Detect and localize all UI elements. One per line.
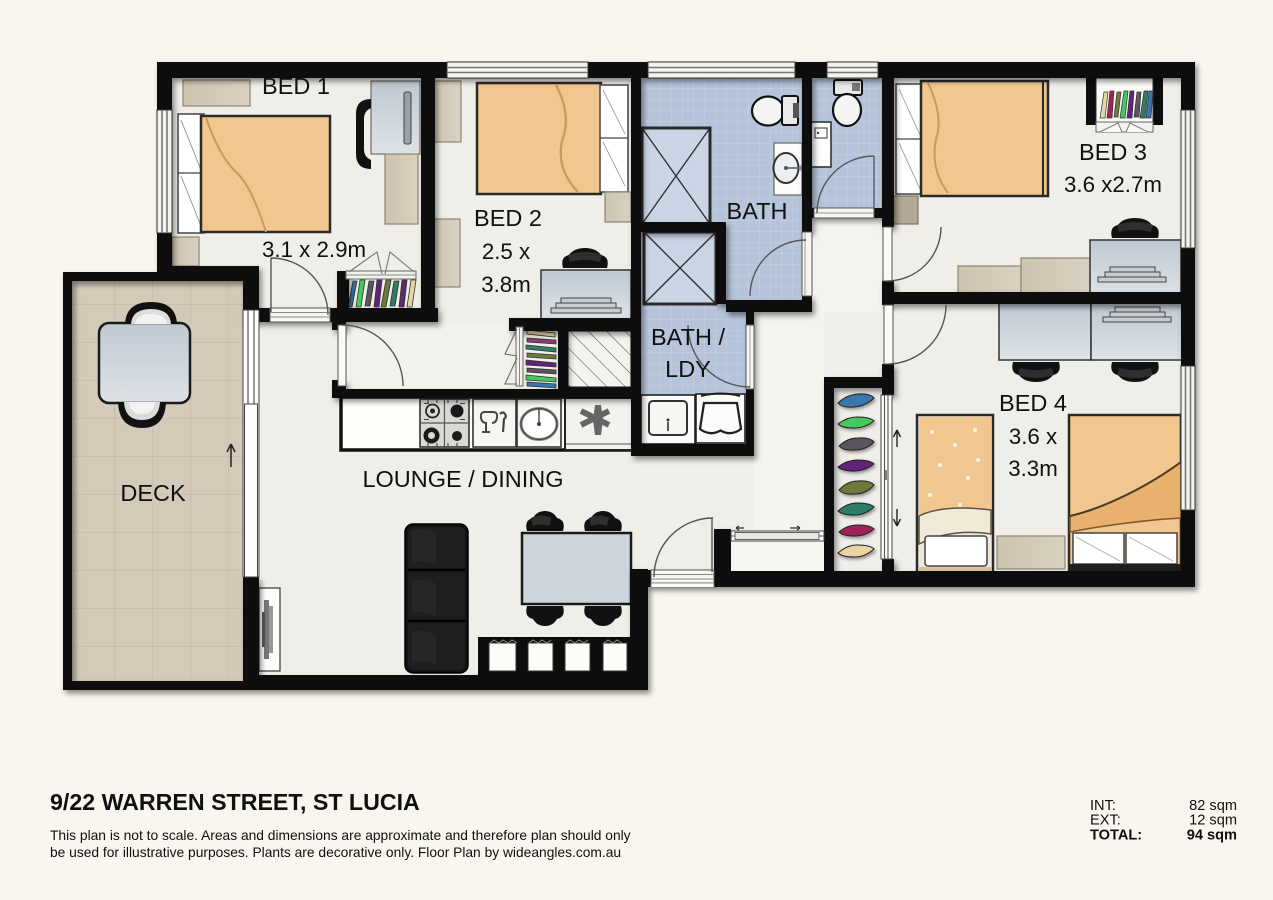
- svg-text:BED 2: BED 2: [474, 205, 542, 231]
- svg-text:3.6 x: 3.6 x: [1009, 424, 1057, 449]
- svg-text:2.5 x: 2.5 x: [482, 239, 530, 264]
- svg-text:12 sqm: 12 sqm: [1189, 813, 1237, 829]
- svg-text:BED 4: BED 4: [999, 390, 1067, 416]
- svg-text:LOUNGE / DINING: LOUNGE / DINING: [362, 466, 563, 492]
- svg-text:BATH /: BATH /: [651, 324, 725, 350]
- svg-text:BATH: BATH: [727, 198, 788, 224]
- svg-text:be used for illustrative purpo: be used for illustrative purposes. Plant…: [50, 845, 621, 860]
- svg-text:3.3m: 3.3m: [1008, 456, 1058, 481]
- svg-text:94 sqm: 94 sqm: [1187, 828, 1237, 844]
- svg-text:DECK: DECK: [120, 480, 186, 506]
- svg-text:9/22 WARREN STREET, ST LUCIA: 9/22 WARREN STREET, ST LUCIA: [50, 789, 420, 815]
- svg-text:This plan is not to scale. Are: This plan is not to scale. Areas and dim…: [50, 828, 631, 843]
- svg-text:EXT:: EXT:: [1090, 813, 1121, 829]
- svg-text:BED 3: BED 3: [1079, 139, 1147, 165]
- svg-text:LDY: LDY: [665, 356, 711, 382]
- svg-text:BED 1: BED 1: [262, 73, 330, 99]
- svg-text:3.1 x 2.9m: 3.1 x 2.9m: [262, 237, 366, 262]
- svg-text:3.8m: 3.8m: [481, 272, 531, 297]
- svg-text:TOTAL:: TOTAL:: [1090, 828, 1142, 844]
- svg-text:3.6 x2.7m: 3.6 x2.7m: [1064, 172, 1162, 197]
